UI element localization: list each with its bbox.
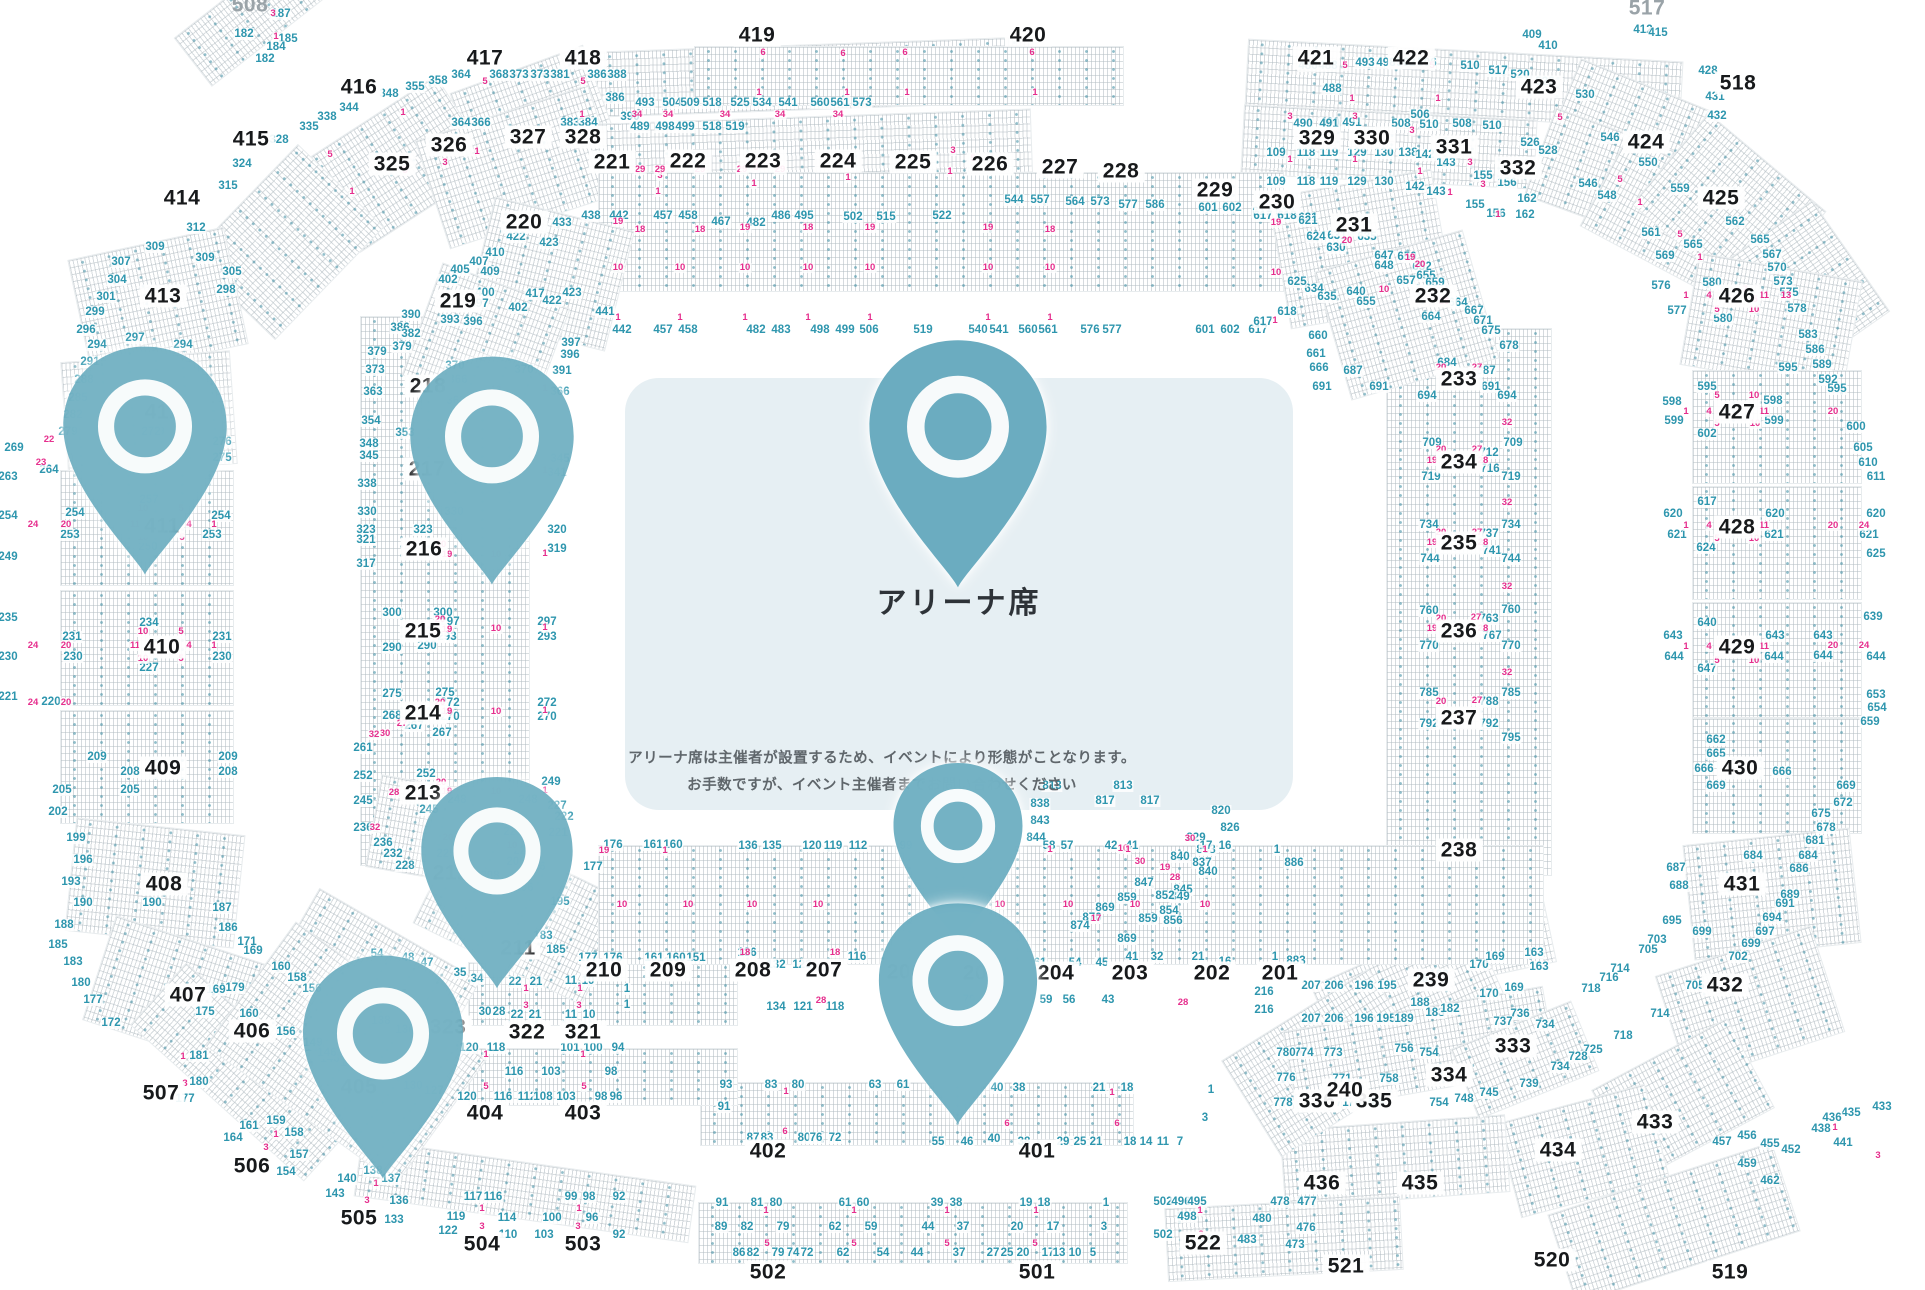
row-number: 734 <box>1534 1019 1555 1031</box>
seat-start-number: 5 <box>580 1082 587 1092</box>
row-number: 605 <box>1852 442 1873 454</box>
row-number: 666 <box>1693 763 1714 775</box>
section-label-327: 327 <box>505 126 552 149</box>
section-label-503: 503 <box>560 1233 607 1256</box>
section-label-224: 224 <box>815 150 862 173</box>
section-label-517: 517 <box>1624 0 1671 20</box>
seat-start-number: 19 <box>739 223 752 233</box>
section-label-414: 414 <box>159 187 206 210</box>
row-number: 335 <box>298 121 319 133</box>
row-number: 620 <box>1662 508 1683 520</box>
row-number: 477 <box>1296 1196 1317 1208</box>
section-label-321: 321 <box>560 1021 607 1044</box>
row-number: 21 <box>1089 1136 1104 1148</box>
seat-start-number: 18 <box>634 225 647 235</box>
row-number: 345 <box>358 450 379 462</box>
seat-start-number: 5 <box>482 1082 489 1092</box>
seat-start-number: 1 <box>579 1050 586 1060</box>
row-number: 476 <box>1295 1222 1316 1234</box>
row-number: 169 <box>242 945 263 957</box>
row-number: 143 <box>324 1188 345 1200</box>
seat-start-number: 1 <box>804 313 811 323</box>
row-number: 72 <box>828 1132 843 1144</box>
seat-start-number: 10 <box>739 263 752 273</box>
row-number: 675 <box>1480 325 1501 337</box>
section-label-214: 214 <box>400 702 447 725</box>
area-pin[interactable] <box>50 339 240 578</box>
seat-start-number: 10 <box>1062 900 1075 910</box>
row-number: 499 <box>674 121 695 133</box>
row-number: 482 <box>745 324 766 336</box>
seat-start-number: 5 <box>1713 391 1720 401</box>
row-number: 135 <box>761 840 782 852</box>
row-number: 373 <box>364 364 385 376</box>
seat-start-number: 1 <box>272 32 279 42</box>
section-label-332: 332 <box>1495 157 1542 180</box>
section-label-402: 402 <box>745 1140 792 1163</box>
section-label-426: 426 <box>1714 285 1761 308</box>
row-number: 98 <box>604 1066 619 1078</box>
row-number: 510 <box>1418 119 1439 131</box>
section-label-413: 413 <box>140 285 187 308</box>
row-number: 415 <box>1647 27 1668 39</box>
seat-start-number: 3 <box>1874 1151 1881 1161</box>
row-number: 91 <box>715 1197 730 1209</box>
row-number: 92 <box>612 1229 627 1241</box>
row-number: 644 <box>1812 650 1833 662</box>
row-number: 396 <box>462 316 483 328</box>
section-label-418: 418 <box>560 47 607 70</box>
row-number: 62 <box>828 1221 843 1233</box>
seat-start-number: 27 <box>1471 696 1484 706</box>
row-number: 666 <box>1308 362 1329 374</box>
stadium-seat-map: アリーナ席 アリーナ席は主催者が設置するため、イベントにより形態がことなります。… <box>0 0 1925 1290</box>
row-number: 74 <box>786 1247 801 1259</box>
seat-start-number: 1 <box>1031 88 1038 98</box>
seat-start-number: 10 <box>864 263 877 273</box>
seat-start-number: 1 <box>903 88 910 98</box>
row-number: 576 <box>1650 280 1671 292</box>
row-number: 595 <box>1826 383 1847 395</box>
row-number: 778 <box>1272 1097 1293 1109</box>
seat-start-number: 5 <box>1616 175 1623 185</box>
seat-start-number: 1 <box>661 846 668 856</box>
row-number: 886 <box>1283 857 1304 869</box>
seat-start-number: 1 <box>1434 94 1441 104</box>
section-label-227: 227 <box>1037 156 1084 179</box>
seat-start-number: 1 <box>654 187 661 197</box>
row-number: 230 <box>0 651 19 663</box>
row-number: 96 <box>585 1212 600 1224</box>
section-label-329: 329 <box>1294 127 1341 150</box>
seat-start-number: 20 <box>1341 236 1354 246</box>
section-label-429: 429 <box>1714 636 1761 659</box>
row-number: 525 <box>729 97 750 109</box>
section-label-501: 501 <box>1014 1261 1061 1284</box>
row-number: 386 <box>586 69 607 81</box>
row-number: 1 <box>623 983 631 995</box>
row-number: 518 <box>701 121 722 133</box>
row-number: 654 <box>1866 702 1887 714</box>
row-number: 103 <box>540 1066 561 1078</box>
section-label-232: 232 <box>1410 285 1457 308</box>
seat-start-number: 1 <box>541 706 548 716</box>
row-number: 458 <box>677 324 698 336</box>
section-label-424: 424 <box>1623 131 1670 154</box>
row-number: 795 <box>1500 732 1521 744</box>
row-number: 498 <box>1176 1211 1197 1223</box>
section-label-518: 518 <box>1715 72 1762 95</box>
seat-start-number: 10 <box>1044 263 1057 273</box>
seat-start-number: 17 <box>1090 914 1103 924</box>
seat-start-number: 1 <box>943 1206 950 1216</box>
row-number: 686 <box>1788 863 1809 875</box>
row-number: 635 <box>1316 291 1337 303</box>
row-number: 681 <box>1804 835 1825 847</box>
row-number: 269 <box>3 442 24 454</box>
row-number: 678 <box>1815 822 1836 834</box>
seat-start-number: 1 <box>1286 155 1293 165</box>
seat-start-number: 1 <box>348 187 355 197</box>
row-number: 457 <box>1711 1136 1732 1148</box>
seat-start-number: 20 <box>1827 641 1840 651</box>
section-label-236: 236 <box>1436 620 1483 643</box>
row-number: 522 <box>931 210 952 222</box>
row-number: 109 <box>1265 147 1286 159</box>
row-number: 99 <box>564 1191 579 1203</box>
row-number: 206 <box>1323 1013 1344 1025</box>
row-number: 109 <box>1265 176 1286 188</box>
row-number: 589 <box>1811 359 1832 371</box>
seat-start-number: 3 <box>522 1001 529 1011</box>
area-pin[interactable] <box>866 896 1050 1128</box>
seat-start-number: 32 <box>1501 498 1514 508</box>
row-number: 672 <box>1832 797 1853 809</box>
seat-start-number: 3 <box>1351 112 1358 122</box>
area-pin[interactable] <box>290 948 476 1182</box>
row-number: 393 <box>439 314 460 326</box>
row-number: 456 <box>1736 1130 1757 1142</box>
seat-start-number: 10 <box>612 263 625 273</box>
row-number: 684 <box>1742 850 1763 862</box>
row-number: 557 <box>1029 194 1050 206</box>
row-number: 509 <box>679 97 700 109</box>
row-number: 232 <box>382 848 403 860</box>
row-number: 502 <box>1152 1229 1173 1241</box>
row-number: 7 <box>1176 1136 1184 1148</box>
row-number: 112 <box>848 840 869 852</box>
seat-start-number: 1 <box>782 1087 789 1097</box>
row-number: 480 <box>1251 1213 1272 1225</box>
row-number: 620 <box>1764 508 1785 520</box>
row-number: 691 <box>1311 381 1332 393</box>
row-number: 363 <box>362 386 383 398</box>
section-label-203: 203 <box>1107 962 1154 985</box>
row-number: 309 <box>144 241 165 253</box>
section-label-330: 330 <box>1349 127 1396 150</box>
row-number: 11 <box>1156 1136 1170 1148</box>
row-number: 773 <box>1322 1047 1343 1059</box>
row-number: 62 <box>836 1247 851 1259</box>
row-number: 46 <box>960 1136 975 1148</box>
seat-start-number: 1 <box>1494 210 1501 220</box>
row-number: 116 <box>847 951 868 963</box>
row-number: 780 <box>1275 1047 1296 1059</box>
row-number: 5 <box>1089 1247 1097 1259</box>
seat-start-number: 4 <box>1705 521 1712 531</box>
row-number: 182 <box>254 53 275 65</box>
row-number: 312 <box>185 222 206 234</box>
seat-start-number: 10 <box>1378 285 1391 295</box>
seat-start-number: 10 <box>1748 391 1761 401</box>
row-number: 852 <box>1154 890 1175 902</box>
seat-start-number: 32 <box>1501 582 1514 592</box>
seat-start-number: 1 <box>1416 167 1423 177</box>
section-label-234: 234 <box>1436 451 1483 474</box>
seat-start-number: 4 <box>185 641 192 651</box>
seat-start-number: 10 <box>616 900 629 910</box>
seat-start-number: 6 <box>781 1127 788 1137</box>
seat-start-number: 20 <box>1414 260 1427 270</box>
section-label-521: 521 <box>1323 1255 1370 1278</box>
row-number: 502 <box>842 211 863 223</box>
row-number: 662 <box>1705 734 1726 746</box>
row-number: 187 <box>211 902 232 914</box>
seat-start-number: 32 <box>1501 668 1514 678</box>
seat-start-number: 10 <box>1270 268 1283 278</box>
section-label-435: 435 <box>1397 1172 1444 1195</box>
row-number: 745 <box>1478 1087 1499 1099</box>
row-number: 561 <box>829 97 850 109</box>
seat-start-number: 20 <box>60 698 73 708</box>
seat-start-number: 1 <box>1682 407 1689 417</box>
section-label-222: 222 <box>665 150 712 173</box>
row-number: 307 <box>110 256 131 268</box>
row-number: 209 <box>217 751 238 763</box>
seat-start-number: 1 <box>1032 1206 1039 1216</box>
row-number: 100 <box>541 1212 562 1224</box>
section-label-219: 219 <box>435 290 482 313</box>
row-number: 548 <box>1596 190 1617 202</box>
seat-start-number: 1 <box>844 173 851 183</box>
row-number: 188 <box>53 919 74 931</box>
row-number: 874 <box>1069 920 1090 932</box>
seat-start-number: 4 <box>1705 407 1712 417</box>
row-number: 435 <box>1840 1107 1861 1119</box>
row-number: 754 <box>1428 1097 1449 1109</box>
row-number: 659 <box>1859 716 1880 728</box>
row-number: 660 <box>1307 330 1328 342</box>
seat-start-number: 30 <box>1134 857 1147 867</box>
row-number: 653 <box>1865 689 1886 701</box>
row-number: 275 <box>381 688 402 700</box>
row-number: 180 <box>70 977 91 989</box>
row-number: 541 <box>777 97 798 109</box>
section-label-522: 522 <box>1180 1232 1227 1255</box>
row-number: 230 <box>62 651 83 663</box>
row-number: 25 <box>1000 1247 1015 1259</box>
row-number: 567 <box>1761 249 1782 261</box>
seat-start-number: 28 <box>1177 998 1190 1008</box>
row-number: 617 <box>1696 496 1717 508</box>
row-number: 315 <box>217 180 238 192</box>
row-number: 305 <box>221 266 242 278</box>
row-number: 96 <box>609 1091 624 1103</box>
section-label-508: 508 <box>227 0 274 17</box>
row-number: 79 <box>771 1247 786 1259</box>
section-label-415: 415 <box>228 128 275 151</box>
row-number: 21 <box>1092 1082 1107 1094</box>
row-number: 28 <box>492 1006 507 1018</box>
seat-start-number: 1 <box>1201 845 1208 855</box>
row-number: 169 <box>1484 951 1505 963</box>
row-number: 195 <box>1376 980 1397 992</box>
seat-start-number: 3 <box>1479 180 1486 190</box>
seat-start-number: 18 <box>739 948 752 958</box>
row-number: 644 <box>1865 651 1886 663</box>
seat-start-number: 1 <box>676 313 683 323</box>
seat-start-number: 5 <box>943 1239 950 1249</box>
row-number: 119 <box>823 840 844 852</box>
row-number: 744 <box>1419 553 1440 565</box>
row-number: 159 <box>265 1115 286 1127</box>
section-label-519: 519 <box>1707 1261 1754 1284</box>
row-number: 40 <box>987 1133 1002 1145</box>
row-number: 175 <box>194 1006 215 1018</box>
row-number: 364 <box>450 117 471 129</box>
row-number: 1 <box>1102 1197 1110 1209</box>
row-number: 433 <box>551 217 572 229</box>
row-number: 136 <box>388 1195 409 1207</box>
seat-start-number: 30 <box>379 729 392 739</box>
section-label-202: 202 <box>1189 962 1236 985</box>
row-number: 719 <box>1500 471 1521 483</box>
seat-start-number: 18 <box>1044 225 1057 235</box>
row-number: 570 <box>1766 262 1787 274</box>
row-number: 18 <box>1120 1082 1135 1094</box>
seat-start-number: 1 <box>478 1204 485 1214</box>
section-label-208: 208 <box>730 959 777 982</box>
seat-start-number: 20 <box>1435 697 1448 707</box>
seat-start-number: 19 <box>612 217 625 227</box>
row-number: 462 <box>1759 1175 1780 1187</box>
row-number: 618 <box>1276 306 1297 318</box>
row-number: 577 <box>1101 324 1122 336</box>
seat-start-number: 10 <box>812 900 825 910</box>
seat-start-number: 1 <box>1108 1088 1115 1098</box>
row-number: 756 <box>1393 1043 1414 1055</box>
row-number: 134 <box>765 1001 786 1013</box>
row-number: 457 <box>652 324 673 336</box>
seat-start-number: 5 <box>1341 61 1348 71</box>
row-number: 254 <box>0 510 19 522</box>
section-label-226: 226 <box>967 153 1014 176</box>
seat-start-number: 24 <box>27 641 40 651</box>
row-number: 386 <box>604 92 625 104</box>
row-number: 423 <box>538 237 559 249</box>
section-label-420: 420 <box>1005 24 1052 47</box>
row-number: 338 <box>356 478 377 490</box>
row-number: 163 <box>1528 961 1549 973</box>
seat-start-number: 1 <box>482 1050 489 1060</box>
seat-start-number: 10 <box>490 707 503 717</box>
seat-start-number: 28 <box>1169 873 1182 883</box>
seat-start-number: 10 <box>674 263 687 273</box>
section-label-432: 432 <box>1702 974 1749 997</box>
row-number: 565 <box>1749 234 1770 246</box>
row-number: 478 <box>1269 1196 1290 1208</box>
row-number: 44 <box>910 1247 925 1259</box>
section-label-221: 221 <box>589 151 636 174</box>
row-number: 43 <box>1101 994 1116 1006</box>
row-number: 348 <box>358 438 379 450</box>
row-number: 93 <box>719 1079 734 1091</box>
seat-start-number: 1 <box>762 1206 769 1216</box>
row-number: 98 <box>582 1191 597 1203</box>
section-label-210: 210 <box>581 959 628 982</box>
row-number: 206 <box>1323 980 1344 992</box>
row-number: 143 <box>1425 186 1446 198</box>
section-label-326: 326 <box>426 134 473 157</box>
row-number: 72 <box>800 1247 815 1259</box>
row-number: 162 <box>1516 193 1537 205</box>
section-label-502: 502 <box>745 1261 792 1284</box>
row-number: 459 <box>1736 1158 1757 1170</box>
row-number: 122 <box>437 1225 458 1237</box>
row-number: 601 <box>1194 324 1215 336</box>
row-number: 518 <box>701 97 722 109</box>
row-number: 37 <box>952 1247 967 1259</box>
seat-start-number: 20 <box>60 641 73 651</box>
row-number: 438 <box>580 210 601 222</box>
row-number: 569 <box>1654 250 1675 262</box>
seat-start-number: 3 <box>363 1196 370 1206</box>
row-number: 186 <box>217 922 238 934</box>
area-pin[interactable] <box>855 332 1061 592</box>
row-number: 859 <box>1137 913 1158 925</box>
section-label-408: 408 <box>141 873 188 896</box>
arena-note-line1: アリーナ席は主催者が設置するため、イベントにより形態がことなります。 <box>628 747 1136 768</box>
row-number: 216 <box>1253 1004 1274 1016</box>
row-number: 163 <box>1523 947 1544 959</box>
row-number: 143 <box>1435 157 1456 169</box>
row-number: 290 <box>381 642 402 654</box>
seat-start-number: 6 <box>759 48 766 58</box>
row-number: 598 <box>1661 396 1682 408</box>
area-pin[interactable] <box>397 349 587 588</box>
row-number: 196 <box>1353 1013 1374 1025</box>
row-number: 517 <box>1487 65 1508 77</box>
row-number: 422 <box>541 295 562 307</box>
row-number: 432 <box>1706 110 1727 122</box>
row-number: 678 <box>1498 340 1519 352</box>
row-number: 402 <box>437 274 458 286</box>
row-number: 209 <box>86 751 107 763</box>
row-number: 116 <box>504 1066 525 1078</box>
row-number: 94 <box>611 1042 626 1054</box>
row-number: 207 <box>1300 980 1321 992</box>
seat-block <box>1386 328 1552 876</box>
row-number: 493 <box>634 97 655 109</box>
section-label-436: 436 <box>1299 1172 1346 1195</box>
row-number: 309 <box>194 252 215 264</box>
section-label-430: 430 <box>1717 757 1764 780</box>
row-number: 180 <box>188 1076 209 1088</box>
seat-start-number: 1 <box>866 313 873 323</box>
row-number: 177 <box>582 861 603 873</box>
row-number: 14 <box>1139 1136 1154 1148</box>
seat-start-number: 3 <box>1286 112 1293 122</box>
